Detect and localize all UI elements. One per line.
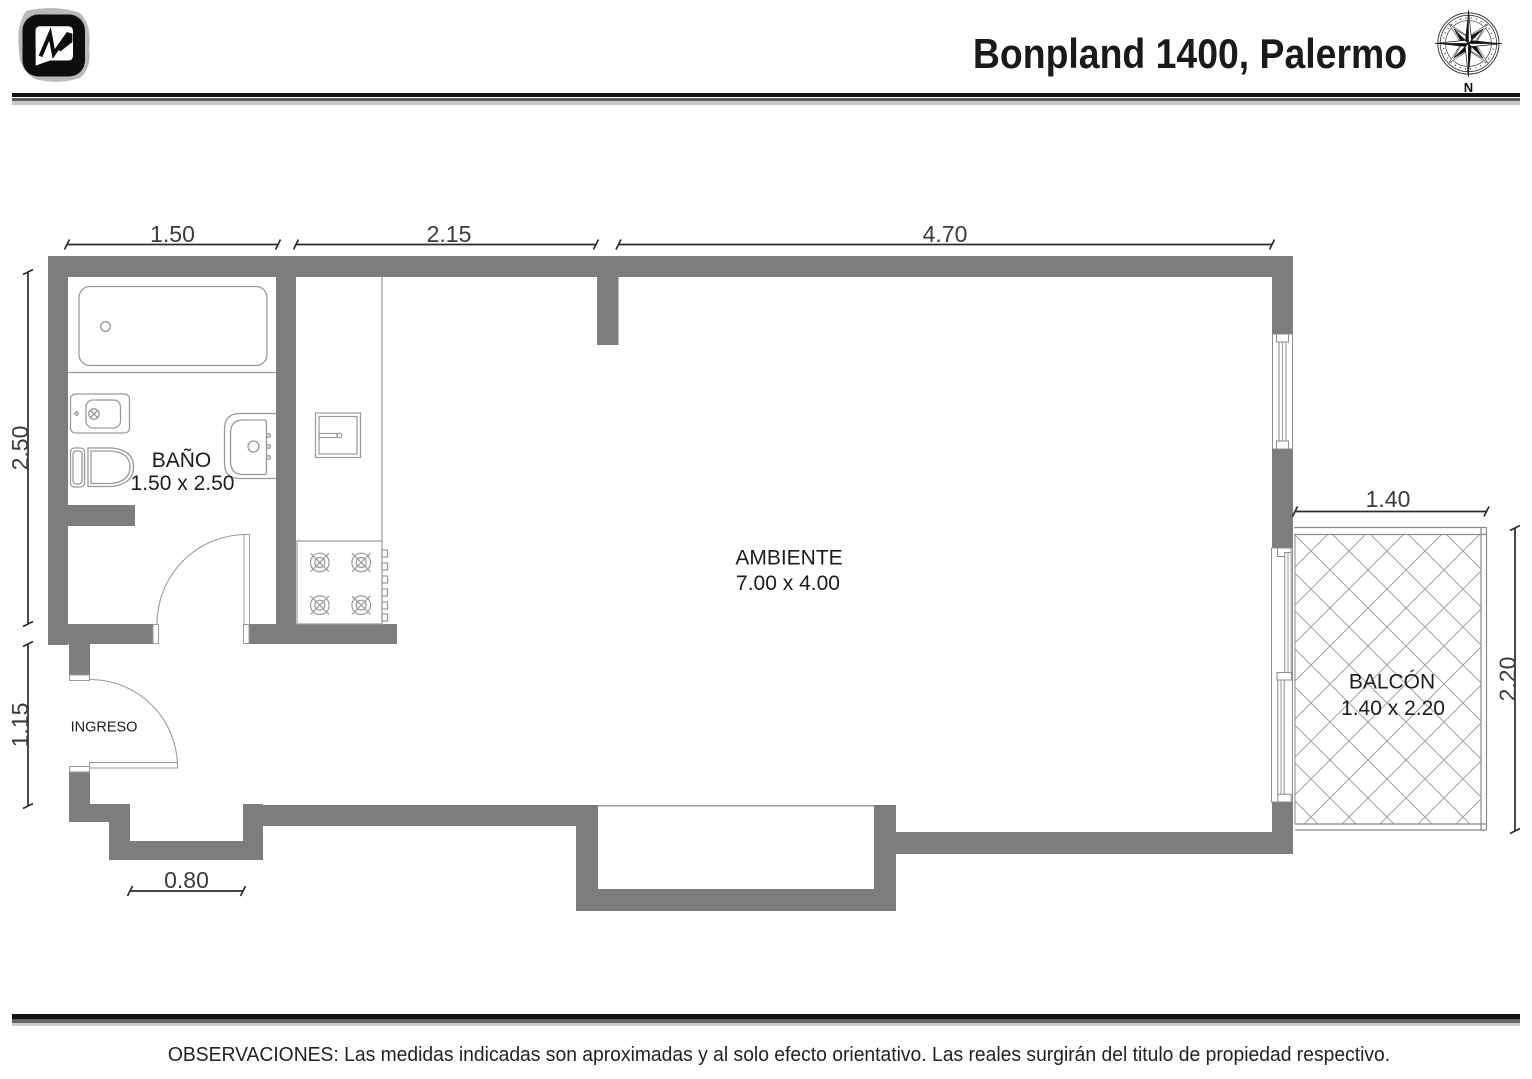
svg-text:2.20: 2.20 (1495, 657, 1521, 702)
svg-text:1.15: 1.15 (7, 703, 33, 748)
svg-text:1.50 x 2.50: 1.50 x 2.50 (131, 472, 235, 495)
svg-text:BAÑO: BAÑO (152, 448, 212, 472)
svg-text:2.15: 2.15 (427, 221, 472, 247)
svg-text:1.40 x 2.20: 1.40 x 2.20 (1341, 697, 1445, 720)
svg-text:0.80: 0.80 (164, 867, 209, 893)
svg-text:INGRESO: INGRESO (71, 720, 138, 736)
svg-text:2.50: 2.50 (7, 426, 33, 471)
svg-text:4.70: 4.70 (923, 221, 968, 247)
svg-text:AMBIENTE: AMBIENTE (735, 547, 842, 570)
svg-text:7.00 x 4.00: 7.00 x 4.00 (736, 572, 840, 595)
svg-text:BALCÓN: BALCÓN (1349, 671, 1435, 694)
svg-text:1.50: 1.50 (150, 221, 195, 247)
svg-text:1.40: 1.40 (1366, 486, 1411, 512)
